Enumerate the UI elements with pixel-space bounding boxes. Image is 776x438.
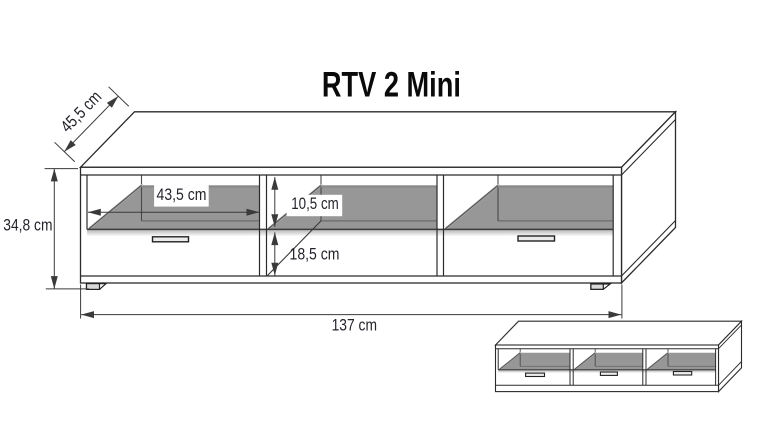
- svg-text:137 cm: 137 cm: [332, 316, 377, 335]
- svg-text:10,5 cm: 10,5 cm: [291, 194, 339, 213]
- svg-text:34,8 cm: 34,8 cm: [3, 216, 52, 235]
- svg-text:18,5 cm: 18,5 cm: [290, 245, 340, 264]
- svg-text:43,5 cm: 43,5 cm: [157, 185, 207, 204]
- svg-text:RTV 2 Mini: RTV 2 Mini: [322, 66, 461, 105]
